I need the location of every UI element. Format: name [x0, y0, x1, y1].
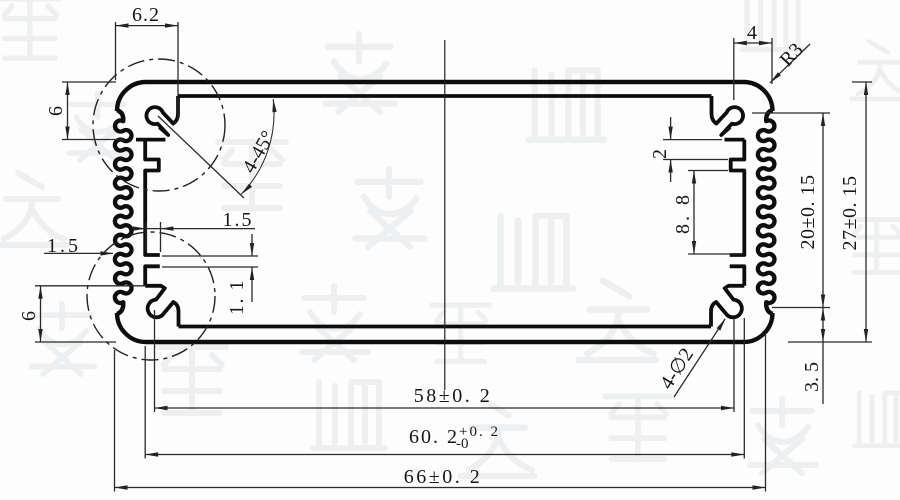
svg-text:R3: R3: [776, 39, 808, 71]
svg-text:4: 4: [747, 22, 757, 44]
svg-text:60. 2+0. 2: 60. 2+0. 2: [409, 424, 500, 448]
svg-text:58±0. 2: 58±0. 2: [414, 385, 492, 407]
svg-text:66±0. 2: 66±0. 2: [404, 466, 482, 488]
svg-text:3. 5: 3. 5: [801, 362, 823, 392]
svg-text:1.5: 1.5: [223, 209, 254, 231]
svg-text:-0: -0: [456, 436, 469, 452]
svg-text:2: 2: [649, 149, 671, 159]
svg-text:6: 6: [18, 311, 40, 321]
svg-text:27±0. 15: 27±0. 15: [839, 176, 861, 251]
svg-text:1.5: 1.5: [47, 235, 81, 257]
svg-text:8. 8: 8. 8: [672, 192, 694, 234]
svg-text:6: 6: [45, 106, 67, 116]
svg-text:20±0. 15: 20±0. 15: [797, 175, 819, 250]
svg-text:6.2: 6.2: [132, 4, 160, 26]
svg-text:1. 1: 1. 1: [226, 279, 248, 315]
